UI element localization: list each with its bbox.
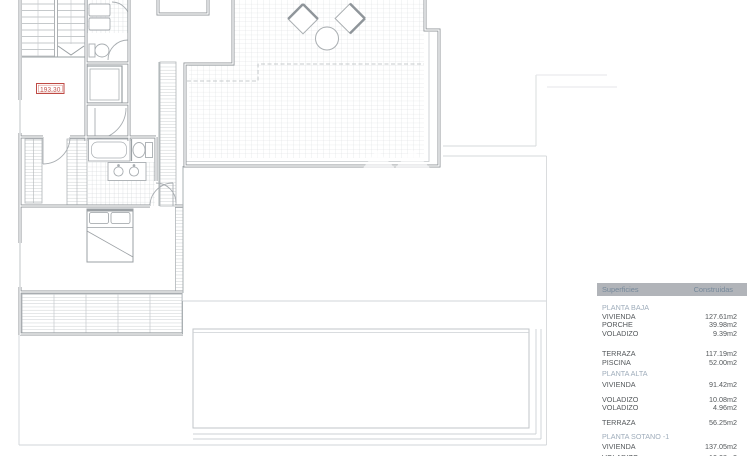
pillow-left	[90, 213, 109, 224]
table-row: TERRAZA56.25m2	[597, 419, 747, 428]
sink-left	[114, 167, 123, 176]
table-section-row: PLANTA ALTA	[597, 370, 747, 379]
row-label: VIVIENDA	[602, 443, 636, 452]
hall-door-arc	[95, 108, 126, 139]
row-label: VIVIENDA	[602, 381, 636, 390]
row-label: VOLADIZO	[602, 330, 638, 339]
table-row: VOLADIZO9.39m2	[597, 330, 747, 339]
table-rows: PLANTA BAJAVIVIENDA127.61m2PORCHE39.98m2…	[597, 304, 747, 456]
table-row: PISCINA52.00m2	[597, 359, 747, 368]
bottom-deck-strip	[22, 294, 182, 334]
elevation-value: 193.30	[40, 86, 61, 93]
toilet-bowl	[95, 44, 109, 57]
area-table: Superficies Construidas PLANTA BAJAVIVIE…	[597, 283, 747, 456]
row-value: 9.39m2	[713, 330, 737, 339]
col-header-construidas: Construidas	[694, 285, 733, 294]
stair-rail	[55, 0, 58, 57]
pool-basin	[193, 329, 529, 428]
round-table	[316, 27, 339, 50]
row-value: 56.25m2	[709, 419, 737, 428]
double-bed	[87, 209, 133, 262]
elevator-shaft	[87, 66, 122, 103]
table-row: VIVIENDA91.42m2	[597, 381, 747, 390]
elevation-label: 193.30	[37, 84, 65, 94]
pillow-right	[111, 213, 130, 224]
row-value: 137.05m2	[705, 443, 737, 452]
stair-direction-arrow	[58, 46, 84, 55]
row-value: 52.00m2	[709, 359, 737, 368]
suite-door-arc	[43, 137, 70, 164]
wc-door-arc	[108, 40, 128, 60]
row-label: PLANTA ALTA	[602, 370, 648, 379]
row-value: 4.96m2	[713, 404, 737, 413]
row-label: TERRAZA	[602, 419, 636, 428]
floorplan-page: 193.30 Superficies Construidas PLANTA BA…	[0, 0, 756, 456]
staircase	[22, 0, 85, 57]
row-value: 91.42m2	[709, 381, 737, 390]
bathroom1-cabinet	[89, 4, 110, 16]
table-header: Superficies Construidas	[597, 283, 747, 296]
table-row: VIVIENDA137.05m2	[597, 443, 747, 452]
swimming-pool	[193, 329, 541, 439]
row-label: VOLADIZO	[602, 404, 638, 413]
row-label: PLANTA SOTANO -1	[602, 433, 669, 442]
sink-right	[129, 167, 138, 176]
row-label: PISCINA	[602, 359, 631, 368]
col-header-superficies: Superficies	[602, 285, 639, 294]
pool-edge-steps	[193, 329, 541, 439]
side-deck-strip-lower	[176, 206, 184, 292]
toilet-tank	[89, 44, 95, 57]
wardrobes	[25, 139, 87, 206]
toilet2-bowl	[133, 143, 145, 158]
table-row: VOLADIZO4.96m2	[597, 404, 747, 413]
bathroom1-cabinet-2	[89, 18, 110, 30]
wc-fixtures	[89, 40, 128, 60]
table-section-row: PLANTA SOTANO -1	[597, 433, 747, 442]
toilet2-tank	[146, 143, 153, 158]
boundary-fading-lines	[536, 75, 617, 87]
